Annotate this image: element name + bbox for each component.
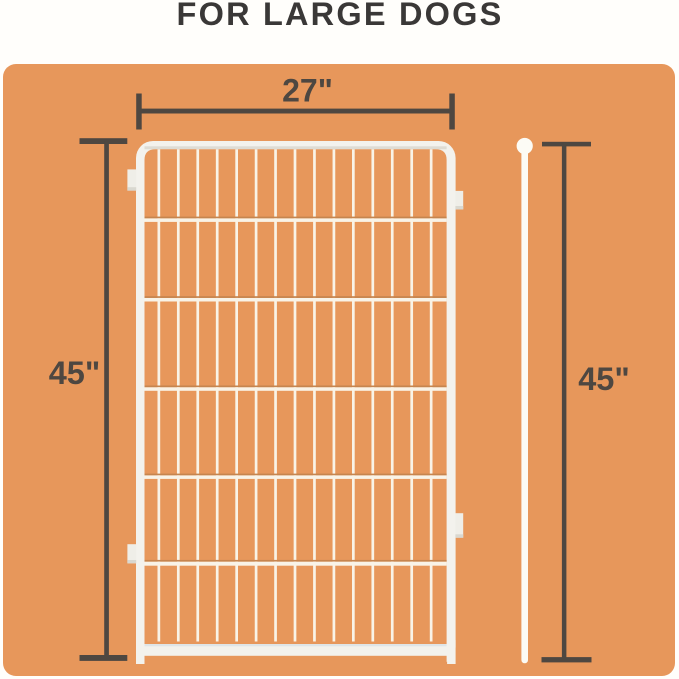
svg-text:27": 27" <box>282 72 333 108</box>
svg-text:FOR LARGE DOGS: FOR LARGE DOGS <box>177 0 504 32</box>
svg-text:45": 45" <box>578 361 630 397</box>
svg-text:45": 45" <box>49 355 101 391</box>
